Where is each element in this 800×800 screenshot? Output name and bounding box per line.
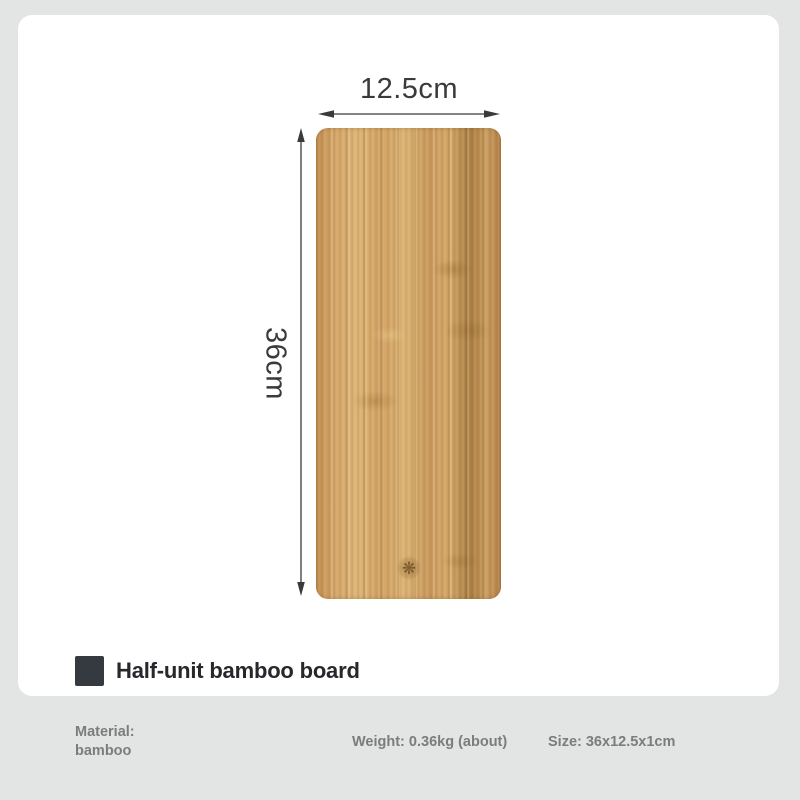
height-dimension-arrow [294, 127, 308, 597]
product-title: Half-unit bamboo board [116, 658, 360, 684]
brand-stamp-icon: ❋ [397, 556, 421, 580]
height-dimension-label: 36cm [254, 128, 296, 599]
spec-weight: Weight: 0.36kg (about) [352, 733, 507, 752]
width-dimension-arrow [316, 107, 502, 121]
page-background: { "product": { "title": "Half-unit bambo… [0, 0, 800, 800]
spec-material-label: Material: [75, 724, 135, 740]
spec-material: Material: bamboo [75, 723, 135, 761]
spec-size: Size: 36x12.5x1cm [548, 733, 675, 752]
bamboo-board: ❋ [316, 128, 501, 599]
spec-material-value: bamboo [75, 743, 131, 759]
product-image-card: 12.5cm 36cm ❋ Half-unit bamboo board [18, 15, 779, 696]
width-dimension-label: 12.5cm [316, 73, 502, 106]
color-swatch [75, 656, 104, 686]
